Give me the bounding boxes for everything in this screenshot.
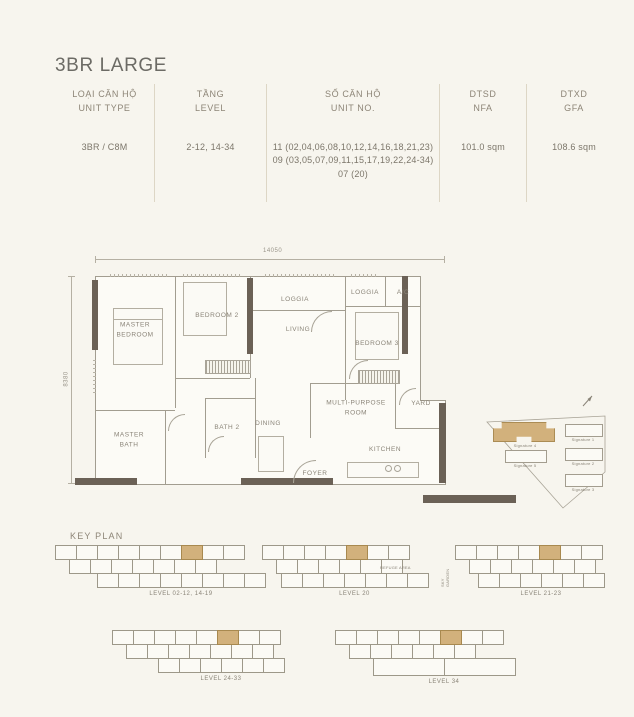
key-plan-level: LEVEL 34: [335, 630, 553, 685]
unit-box: [518, 545, 540, 560]
key-plan-level: LEVEL 21-23: [455, 545, 627, 597]
wall-master-bath-top: [95, 410, 175, 411]
window-master-side: [93, 358, 96, 393]
window-master-bedroom: [110, 274, 168, 277]
unit-box: [139, 545, 161, 560]
wall-loggia2-ac: [385, 276, 386, 306]
header-nfa-en: NFA: [440, 102, 526, 115]
unit-box: [210, 644, 232, 659]
key-plan-level-label: LEVEL 24-33: [112, 676, 330, 682]
unit-box-highlighted: [217, 630, 239, 645]
unit-box: [281, 573, 303, 588]
room-label-master-bedroom: MASTER BEDROOM: [116, 320, 153, 340]
value-unit-no: 11 (02,04,06,08,10,12,14,16,18,21,23) 09…: [267, 141, 439, 182]
unit-box: [147, 644, 169, 659]
unit-box: [541, 573, 563, 588]
unit-box: [532, 559, 554, 574]
unit-box: [221, 658, 243, 673]
room-label-loggia-left: LOGGIA: [281, 295, 309, 305]
unit-box: [335, 630, 357, 645]
col-unit-type: LOẠI CĂN HỘ UNIT TYPE 3BR / C8M: [55, 84, 155, 202]
kitchen-counter: [347, 462, 419, 478]
unit-box: [562, 573, 584, 588]
value-level: 2-12, 14-34: [155, 141, 266, 155]
unit-box: [476, 545, 498, 560]
wall-heavy-left: [92, 280, 98, 350]
room-label-bath2: BATH 2: [214, 423, 239, 433]
unit-box: [482, 630, 504, 645]
col-nfa: DTSD NFA 101.0 sqm: [440, 84, 527, 202]
unit-box: [189, 644, 211, 659]
wardrobe-bedroom2: [205, 360, 251, 374]
unit-box: [370, 644, 392, 659]
room-label-bedroom2: BEDROOM 2: [195, 311, 239, 321]
wall-mpr-left: [310, 383, 311, 438]
unit-box: [297, 559, 319, 574]
unit-box: [276, 559, 298, 574]
wall-bed2-bottom: [175, 378, 250, 379]
unit-box: [325, 545, 347, 560]
value-nfa: 101.0 sqm: [440, 141, 526, 155]
room-label-bedroom3: BEDROOM 3: [355, 339, 399, 349]
unit-box: [454, 644, 476, 659]
unit-box: [196, 630, 218, 645]
unit-box: [231, 644, 253, 659]
unit-box: [202, 573, 224, 588]
unit-box: [118, 573, 140, 588]
unit-box: [200, 658, 222, 673]
unit-box: [223, 573, 245, 588]
unit-box: [195, 559, 217, 574]
unit-box: [259, 630, 281, 645]
unit-box-highlighted: [346, 545, 368, 560]
unit-box: [238, 630, 260, 645]
unit-box: [583, 573, 605, 588]
unit-box: [349, 644, 371, 659]
unit-box: [339, 559, 361, 574]
unit-box: [154, 630, 176, 645]
bed-bedroom2: [183, 282, 227, 336]
unit-box: [160, 545, 182, 560]
unit-box: [263, 658, 285, 673]
wall-mpr-yard: [395, 383, 396, 428]
dimension-width-label: 14050: [263, 248, 282, 254]
wall-bath2-top: [205, 398, 255, 399]
unit-box: [69, 559, 91, 574]
unit-box: [133, 630, 155, 645]
site-building: [565, 424, 603, 437]
unit-box: [360, 559, 382, 574]
unit-box: [76, 545, 98, 560]
header-gfa-en: GFA: [527, 102, 621, 115]
room-label-loggia-right: LOGGIA: [351, 288, 379, 298]
unit-box: [520, 573, 542, 588]
unit-box-highlighted: [440, 630, 462, 645]
room-label-living: LIVING: [286, 325, 310, 335]
window-loggia2: [351, 274, 379, 277]
page-title: 3BR LARGE: [55, 55, 167, 77]
site-building-label: Signature 4: [505, 443, 545, 448]
unit-box: [444, 658, 516, 676]
site-building: [505, 450, 547, 463]
unit-box: [553, 559, 575, 574]
wall-living-bed3: [345, 276, 346, 400]
unit-box: [158, 658, 180, 673]
floor-plan: 14050 8380: [55, 248, 525, 536]
header-gfa-vi: DTXD: [527, 86, 621, 102]
wall-heavy-mid: [247, 278, 253, 354]
site-building-label: Signature 5: [505, 463, 545, 468]
unit-box: [478, 573, 500, 588]
wall-bath2-left: [205, 398, 206, 458]
dimension-height-label: 8380: [64, 371, 70, 386]
unit-box: [398, 630, 420, 645]
room-label-kitchen: KITCHEN: [369, 445, 401, 455]
unit-box-highlighted: [539, 545, 561, 560]
room-label-dining: DINING: [255, 419, 281, 429]
refuge-area-label: REFUGE AREA: [380, 565, 411, 570]
unit-box: [126, 644, 148, 659]
unit-box: [391, 644, 413, 659]
bed-master-pillows: [113, 308, 163, 320]
unit-box: [386, 573, 408, 588]
unit-box: [356, 630, 378, 645]
unit-box: [302, 573, 324, 588]
room-label-multi-purpose: MULTI-PURPOSE ROOM: [326, 398, 385, 418]
wall-master-bed2: [175, 276, 176, 408]
unit-box-highlighted: [181, 545, 203, 560]
window-bedroom2: [183, 274, 243, 277]
col-gfa: DTXD GFA 108.6 sqm: [527, 84, 621, 202]
unit-box: [179, 658, 201, 673]
wall-bath2-right: [255, 378, 256, 458]
unit-box: [365, 573, 387, 588]
unit-box: [97, 573, 119, 588]
unit-box: [574, 559, 596, 574]
unit-box: [202, 545, 224, 560]
header-level-vi: TẦNG: [155, 86, 266, 102]
unit-box: [497, 545, 519, 560]
header-nfa-vi: DTSD: [440, 86, 526, 102]
unit-box: [283, 545, 305, 560]
site-building-label: Signature 3: [565, 487, 601, 492]
unit-box: [388, 545, 410, 560]
wall-loggia2-bed3: [345, 306, 420, 307]
room-label-yard: YARD: [411, 399, 431, 409]
unit-box: [560, 545, 582, 560]
unit-box: [174, 559, 196, 574]
unit-box: [181, 573, 203, 588]
stove-burner-icon: [385, 465, 392, 472]
unit-spec-table: LOẠI CĂN HỘ UNIT TYPE 3BR / C8M TẦNG LEV…: [55, 84, 621, 202]
unit-box: [97, 545, 119, 560]
unit-box: [581, 545, 603, 560]
unit-box: [175, 630, 197, 645]
key-plan-level: REFUGE AREASKY GARDENLEVEL 20: [262, 545, 447, 597]
unit-box: [304, 545, 326, 560]
site-building: [565, 474, 603, 487]
unit-box: [252, 644, 274, 659]
unit-box: [112, 630, 134, 645]
sky-garden-label: SKY GARDEN: [440, 569, 450, 587]
wall-yard-bottom: [395, 428, 445, 429]
unit-box: [412, 644, 434, 659]
site-building-label: Signature 2: [565, 461, 601, 466]
dining-table: [258, 436, 284, 472]
north-arrow-icon: [579, 392, 597, 410]
unit-box: [344, 573, 366, 588]
unit-box: [469, 559, 491, 574]
unit-box: [461, 630, 483, 645]
unit-box: [490, 559, 512, 574]
unit-box: [433, 644, 455, 659]
unit-box: [242, 658, 264, 673]
window-loggia: [265, 274, 337, 277]
unit-box: [407, 573, 429, 588]
unit-box: [262, 545, 284, 560]
unit-box: [55, 545, 77, 560]
col-unit-no: SỐ CĂN HỘ UNIT NO. 11 (02,04,06,08,10,12…: [267, 84, 440, 202]
value-unit-type: 3BR / C8M: [55, 141, 154, 155]
wardrobe-bedroom3: [358, 370, 400, 384]
unit-box: [323, 573, 345, 588]
unit-box: [168, 644, 190, 659]
key-plan-level-label: LEVEL 20: [262, 591, 447, 597]
site-building-label: Signature 1: [565, 437, 601, 442]
col-level: TẦNG LEVEL 2-12, 14-34: [155, 84, 267, 202]
site-key-plan: Signature 4 Signature 1 Signature 2 Sign…: [475, 390, 627, 526]
header-level-en: LEVEL: [155, 102, 266, 115]
key-plan-title: KEY PLAN: [70, 531, 123, 541]
wall-heavy-bottom-mid: [241, 478, 333, 485]
unit-box: [367, 545, 389, 560]
key-plan-level-label: LEVEL 34: [335, 679, 553, 685]
header-unit-no-vi: SỐ CĂN HỘ: [267, 86, 439, 102]
key-plan-level: LEVEL 24-33: [112, 630, 330, 682]
header-unit-type-en: UNIT TYPE: [55, 102, 154, 115]
site-building: [565, 448, 603, 461]
dimension-width-line: [95, 259, 445, 260]
unit-box: [499, 573, 521, 588]
unit-box: [139, 573, 161, 588]
unit-box: [118, 545, 140, 560]
unit-box: [223, 545, 245, 560]
unit-box: [419, 630, 441, 645]
value-gfa: 108.6 sqm: [527, 141, 621, 155]
unit-box: [455, 545, 477, 560]
unit-box: [377, 630, 399, 645]
unit-box: [511, 559, 533, 574]
room-label-master-bath: MASTER BATH: [114, 430, 144, 450]
room-label-foyer: FOYER: [303, 469, 328, 479]
dimension-height-line: [71, 276, 72, 484]
unit-box: [318, 559, 340, 574]
site-boundary: [475, 390, 627, 526]
key-plan-level-label: LEVEL 21-23: [455, 591, 627, 597]
bed-bedroom3: [355, 312, 399, 360]
wall-master-bath-right: [165, 410, 166, 484]
wall-right-upper: [420, 276, 421, 401]
unit-box: [160, 573, 182, 588]
unit-box: [111, 559, 133, 574]
unit-box: [153, 559, 175, 574]
wall-heavy-right-lower: [439, 403, 446, 483]
unit-box: [132, 559, 154, 574]
wall-heavy-bottom-left: [75, 478, 137, 485]
header-unit-type-vi: LOẠI CĂN HỘ: [55, 86, 154, 102]
room-label-ac: A/C: [397, 288, 409, 298]
unit-box: [90, 559, 112, 574]
unit-box: [373, 658, 445, 676]
stove-burner-icon: [394, 465, 401, 472]
header-unit-no-en: UNIT NO.: [267, 102, 439, 115]
